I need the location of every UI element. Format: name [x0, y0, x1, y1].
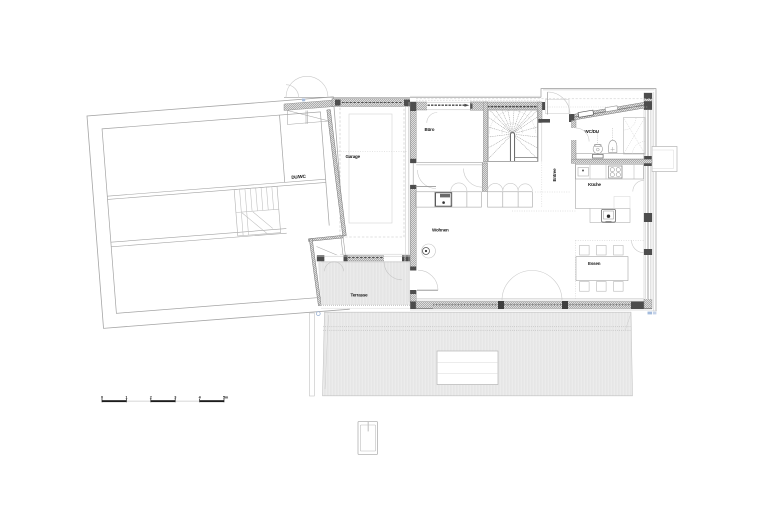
svg-text:0: 0 — [101, 396, 103, 400]
svg-text:Büro: Büro — [425, 127, 435, 132]
svg-text:Essen: Essen — [588, 261, 601, 266]
svg-text:2: 2 — [150, 396, 152, 400]
svg-text:Terrasse: Terrasse — [351, 293, 369, 298]
svg-text:1: 1 — [125, 396, 127, 400]
svg-text:5m: 5m — [223, 396, 229, 400]
svg-text:Wohnen: Wohnen — [432, 227, 449, 232]
svg-text:3: 3 — [174, 396, 176, 400]
svg-text:Garage: Garage — [346, 154, 361, 159]
svg-text:Entree: Entree — [552, 168, 557, 182]
svg-text:Küche: Küche — [588, 182, 602, 187]
